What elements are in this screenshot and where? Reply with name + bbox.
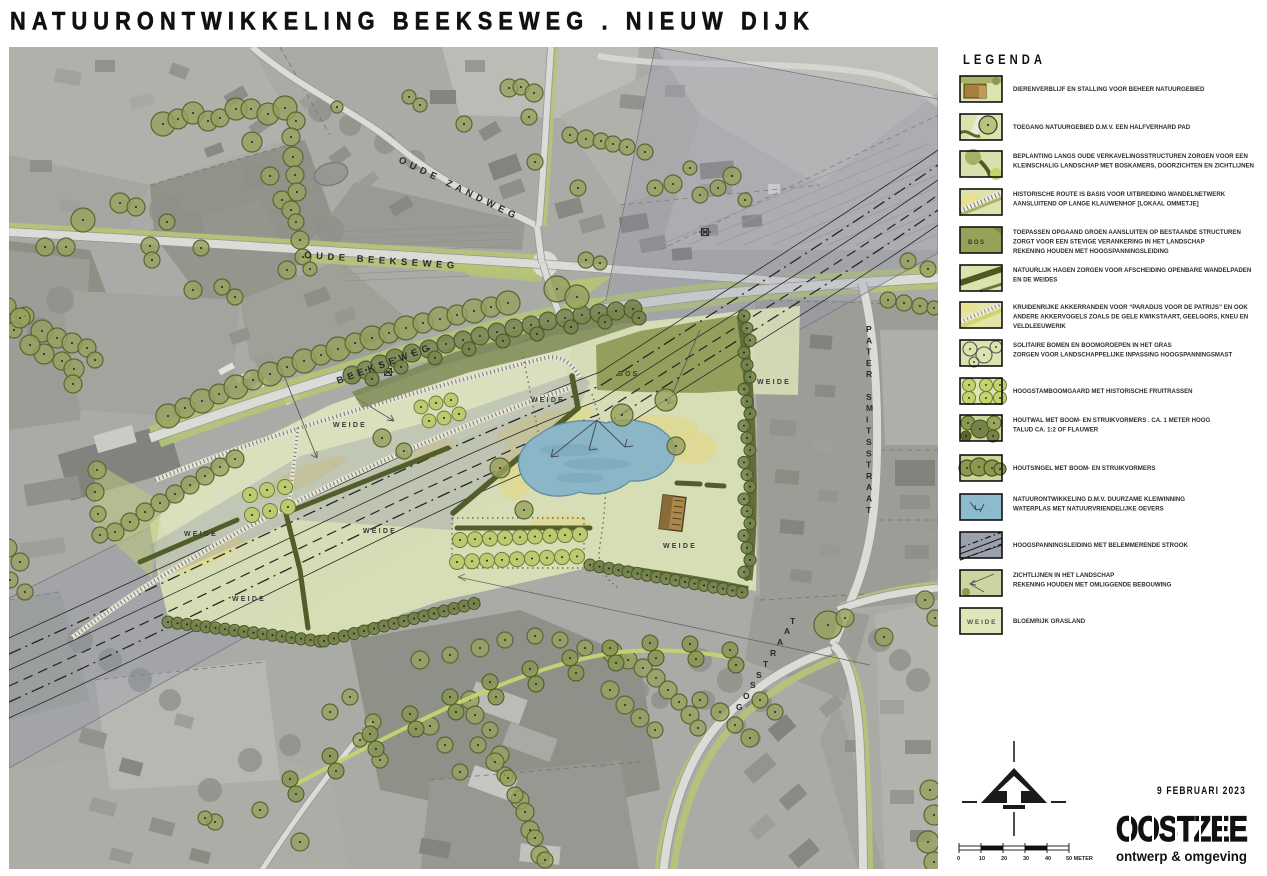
svg-text:TOEPASSEN OPGAAND GROEN AANSLU: TOEPASSEN OPGAAND GROEN AANSLUITEN OP BE… (1013, 229, 1241, 255)
svg-text:HOUTWAL MET BOOM- EN STRUIKVOR: HOUTWAL MET BOOM- EN STRUIKVORMERS . CA.… (1013, 417, 1211, 433)
svg-text:TOEGANG NATUURGEBIED D.M.V. EE: TOEGANG NATUURGEBIED D.M.V. EEN HALFVERH… (1013, 124, 1191, 131)
svg-text:BEPLANTING LANGS OUDE VERKAVEL: BEPLANTING LANGS OUDE VERKAVELINGSSTRUCT… (1013, 153, 1254, 169)
svg-text:WEIDE: WEIDE (967, 619, 997, 626)
svg-text:10: 10 (979, 856, 985, 862)
svg-text:BLOEMRIJK GRASLAND: BLOEMRIJK GRASLAND (1013, 618, 1086, 625)
svg-text:9 FEBRUARI 2023: 9 FEBRUARI 2023 (1157, 785, 1246, 797)
svg-text:NATUURLIJK HAGEN ZORGEN VOOR A: NATUURLIJK HAGEN ZORGEN VOOR AFSCHEIDING… (1013, 267, 1251, 283)
svg-text:BOS: BOS (968, 240, 986, 246)
svg-text:0: 0 (957, 856, 960, 862)
svg-text:OOSTZEE: OOSTZEE (1116, 810, 1247, 849)
svg-text:SOLITAIRE BOMEN EN BOOMGROEPEN: SOLITAIRE BOMEN EN BOOMGROEPEN IN HET GR… (1013, 342, 1232, 358)
svg-text:DIERENVERBLIJF EN STALLING VOO: DIERENVERBLIJF EN STALLING VOOR BEHEER N… (1013, 86, 1205, 93)
svg-text:KRUIDENRIJKE AKKERRANDEN VOOR: KRUIDENRIJKE AKKERRANDEN VOOR “PARADIJS … (1013, 304, 1248, 330)
svg-text:50 METER: 50 METER (1066, 856, 1093, 862)
svg-text:HOOGSPANNINGSLEIDING MET BELEM: HOOGSPANNINGSLEIDING MET BELEMMERENDE ST… (1013, 542, 1189, 549)
svg-text:ontwerp & omgeving: ontwerp & omgeving (1116, 849, 1247, 864)
svg-text:NATUURONTWIKKELING D.M.V. DUUR: NATUURONTWIKKELING D.M.V. DUURZAME KLEIW… (1013, 496, 1185, 512)
svg-text:20: 20 (1001, 856, 1007, 862)
svg-text:LEGENDA: LEGENDA (963, 51, 1046, 67)
svg-text:ZICHTLIJNEN IN HET LANDSCHAPRE: ZICHTLIJNEN IN HET LANDSCHAPREKENING HOU… (1013, 572, 1172, 588)
svg-text:HISTORISCHE ROUTE IS BASIS VOO: HISTORISCHE ROUTE IS BASIS VOOR UITBREID… (1013, 191, 1226, 207)
svg-text:HOOGSTAMBOOMGAARD MET HISTORIS: HOOGSTAMBOOMGAARD MET HISTORISCHE FRUITR… (1013, 388, 1193, 395)
svg-text:HOUTSINGEL MET BOOM- EN STRUIK: HOUTSINGEL MET BOOM- EN STRUIKVORMERS (1013, 465, 1155, 472)
svg-text:NATUURONTWIKKELING BEEKSEWEG .: NATUURONTWIKKELING BEEKSEWEG . NIEUW DIJ… (10, 8, 815, 36)
svg-text:40: 40 (1045, 856, 1051, 862)
svg-text:30: 30 (1023, 856, 1029, 862)
